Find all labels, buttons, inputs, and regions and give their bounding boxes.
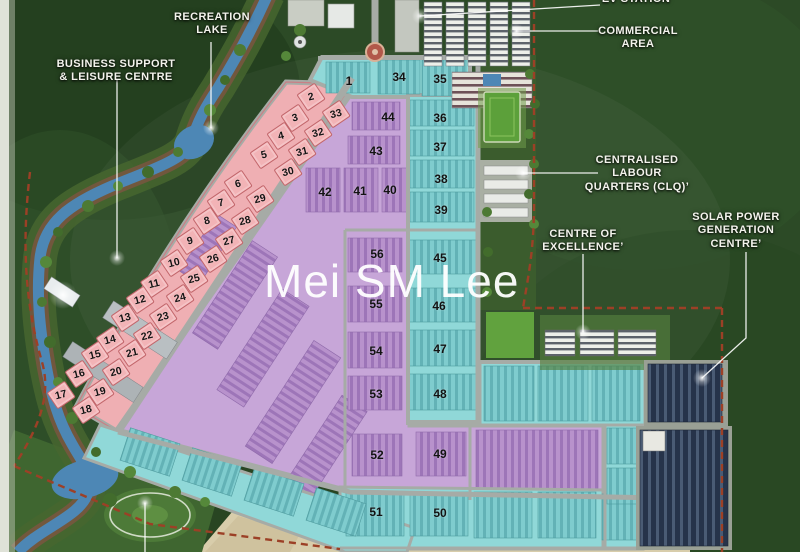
lot-14: 14 — [104, 334, 116, 346]
lot-12: 12 — [134, 294, 146, 306]
label-text: GENERATION — [692, 224, 780, 237]
lot-number: 48 — [433, 387, 446, 401]
lot-26: 26 — [207, 253, 219, 265]
lot-22: 22 — [141, 330, 153, 342]
lot-18: 18 — [80, 404, 92, 416]
lot-number: 1 — [346, 74, 353, 88]
lot-36: 36 — [433, 111, 446, 125]
lot-42: 42 — [318, 185, 331, 199]
lot-number: 52 — [370, 448, 383, 462]
lot-6: 6 — [235, 178, 241, 190]
lot-52: 52 — [370, 448, 383, 462]
lot-35: 35 — [433, 72, 446, 86]
lot-17: 17 — [55, 389, 67, 401]
label-text: CENTRE’ — [692, 238, 780, 251]
lot-3: 3 — [292, 112, 298, 124]
lot-19: 19 — [94, 386, 106, 398]
label-text: LAKE — [174, 24, 250, 37]
lot-53: 53 — [369, 387, 382, 401]
label-centre-of-excellence: CENTRE OF EXCELLENCE’ — [542, 228, 623, 255]
lot-number: 34 — [392, 70, 405, 84]
lot-number: 37 — [433, 140, 446, 154]
lot-11: 11 — [148, 278, 159, 290]
lot-number: 43 — [369, 144, 382, 158]
lot-24: 24 — [174, 292, 186, 304]
label-text: BUSINESS SUPPORT — [57, 58, 176, 71]
lot-number: 54 — [369, 344, 382, 358]
lot-20: 20 — [110, 366, 122, 378]
label-solar-power: SOLAR POWER GENERATION CENTRE’ — [692, 211, 780, 251]
label-text: CENTRALISED — [585, 154, 689, 167]
lot-number: 39 — [434, 203, 447, 217]
lot-number: 36 — [433, 111, 446, 125]
lot-37: 37 — [433, 140, 446, 154]
lot-27: 27 — [223, 235, 235, 247]
label-text: CENTRE OF — [542, 228, 623, 241]
lot-28: 28 — [239, 215, 251, 227]
lot-number: 50 — [433, 506, 446, 520]
lot-2: 2 — [308, 91, 314, 103]
label-business-support: BUSINESS SUPPORT & LEISURE CENTRE — [57, 58, 176, 85]
lot-number: 38 — [434, 172, 447, 186]
label-text: EV STATION — [602, 0, 670, 6]
label-text: QUARTERS (CLQ)’ — [585, 181, 689, 194]
lot-39: 39 — [434, 203, 447, 217]
lot-1: 1 — [346, 74, 353, 88]
lot-21: 21 — [126, 347, 138, 359]
label-clq: CENTRALISED LABOUR QUARTERS (CLQ)’ — [585, 154, 689, 194]
lot-29: 29 — [254, 193, 266, 205]
lot-number: 40 — [383, 183, 396, 197]
lot-10: 10 — [168, 257, 180, 269]
lot-31: 31 — [296, 146, 308, 158]
lot-40: 40 — [383, 183, 396, 197]
label-text: AREA — [598, 38, 678, 51]
lot-30: 30 — [282, 166, 294, 178]
lot-47: 47 — [433, 342, 446, 356]
label-text: SOLAR POWER — [692, 211, 780, 224]
lot-38: 38 — [434, 172, 447, 186]
lot-25: 25 — [188, 273, 200, 285]
label-ev-station: EV STATION — [602, 0, 670, 6]
lot-number: 49 — [433, 447, 446, 461]
lot-number: 44 — [381, 110, 394, 124]
lot-34: 34 — [392, 70, 405, 84]
label-text: & LEISURE CENTRE — [57, 71, 176, 84]
label-text: EXCELLENCE’ — [542, 241, 623, 254]
lot-33: 33 — [330, 108, 342, 120]
watermark: Mei SM Lee — [264, 254, 519, 308]
lot-23: 23 — [157, 311, 169, 323]
masterplan-map: 2333432531306297288279261025112412231322… — [0, 0, 800, 552]
lot-44: 44 — [381, 110, 394, 124]
lot-7: 7 — [218, 197, 224, 209]
label-text: COMMERCIAL — [598, 25, 678, 38]
lot-48: 48 — [433, 387, 446, 401]
lot-4: 4 — [278, 130, 284, 142]
lot-54: 54 — [369, 344, 382, 358]
lot-50: 50 — [433, 506, 446, 520]
lot-41: 41 — [353, 184, 366, 198]
lot-number: 53 — [369, 387, 382, 401]
lot-number: 35 — [433, 72, 446, 86]
label-recreation-lake: RECREATION LAKE — [174, 11, 250, 38]
lot-8: 8 — [204, 215, 210, 227]
lot-13: 13 — [119, 312, 131, 324]
lot-15: 15 — [89, 349, 101, 361]
lot-9: 9 — [187, 235, 193, 247]
lot-number: 41 — [353, 184, 366, 198]
label-text: LABOUR — [585, 167, 689, 180]
lot-number: 42 — [318, 185, 331, 199]
lot-43: 43 — [369, 144, 382, 158]
lot-32: 32 — [312, 127, 324, 139]
lot-51: 51 — [369, 505, 382, 519]
lot-16: 16 — [73, 368, 85, 380]
lot-5: 5 — [261, 149, 267, 161]
lot-number: 47 — [433, 342, 446, 356]
label-text: RECREATION — [174, 11, 250, 24]
lot-number: 51 — [369, 505, 382, 519]
label-commercial-area: COMMERCIAL AREA — [598, 25, 678, 52]
lot-49: 49 — [433, 447, 446, 461]
